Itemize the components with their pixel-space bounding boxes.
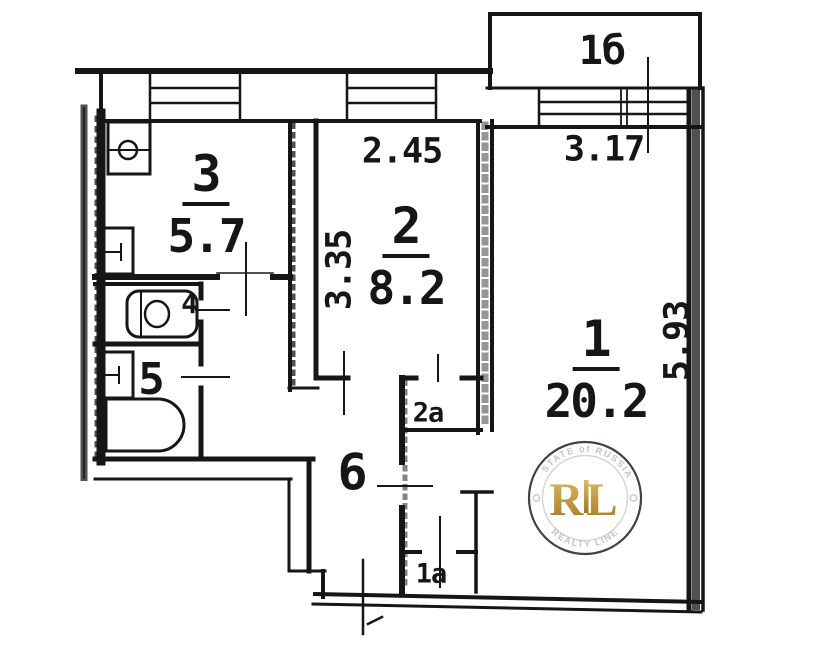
watermark-dot-right [630,495,636,501]
room2-number: 2 [382,201,429,258]
dim-room2-width: 2.45 [362,135,442,170]
window-room2 [347,71,436,121]
wc-label: 4 [181,290,197,318]
bath-label: 5 [138,358,164,402]
dim-room1-width: 3.17 [564,133,644,168]
balcony-label: 1б [579,31,625,71]
bathtub [106,399,184,451]
kitchen-area: 5.7 [167,213,244,259]
room2-label: 2 8.2 [367,201,444,311]
room1-number: 1 [572,314,619,371]
bottom-wall [315,594,701,602]
window-kitchen [150,71,240,121]
watermark-monogram-bar [584,480,589,513]
room1-area: 20.2 [545,378,648,424]
kitchen-sink [108,122,150,174]
kitchen-number: 3 [182,149,229,206]
room2-area: 8.2 [367,265,444,311]
kitchen-label: 3 5.7 [167,149,244,259]
hall-label: 6 [337,447,366,497]
closet-2a-label: 2а [413,400,444,427]
watermark-dot-left [533,495,539,501]
room1-label: 1 20.2 [545,314,648,424]
dim-room1-depth: 5.93 [661,301,696,381]
floor-plan-drawing: ESTATE of RUSSIA REALTY LINE RL [0,0,837,650]
closet-1a-label: 1а [416,561,447,588]
window-room1 [539,88,690,127]
dim-room2-depth: 3.35 [323,230,358,310]
floor-plan-page: ESTATE of RUSSIA REALTY LINE RL 1б 3.17 … [0,0,837,650]
